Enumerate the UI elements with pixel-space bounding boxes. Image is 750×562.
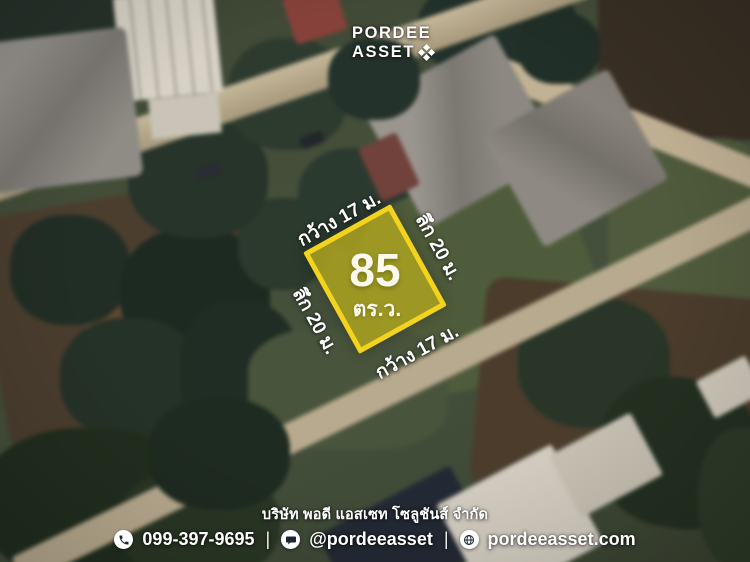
plot-area-value: 85 [335,243,415,297]
separator: | [442,529,451,550]
globe-icon [460,530,479,549]
website: pordeeasset.com [488,529,636,550]
line-id: @pordeeasset [309,529,433,550]
listing-image: PORDEE ASSET 85 ตร.ว. กว้าง 17 ม. ลึก 20… [0,0,750,562]
contact-line: 099-397-9695 | @pordeeasset | pordeeasse… [114,529,635,550]
phone-icon [114,530,133,549]
company-name: บริษัท พอดี แอสเซท โซลูชันส์ จำกัด [262,503,488,526]
phone-number: 099-397-9695 [142,529,254,550]
brand-logo: PORDEE ASSET [352,24,434,62]
footer-contact-bar: บริษัท พอดี แอสเซท โซลูชันส์ จำกัด 099-3… [0,503,750,550]
separator: | [264,529,273,550]
brand-line1: PORDEE [352,24,434,43]
plot-area-unit: ตร.ว. [337,293,417,326]
line-app-icon [281,530,300,549]
brand-line2: ASSET [352,43,415,62]
four-diamonds-icon [419,45,434,60]
